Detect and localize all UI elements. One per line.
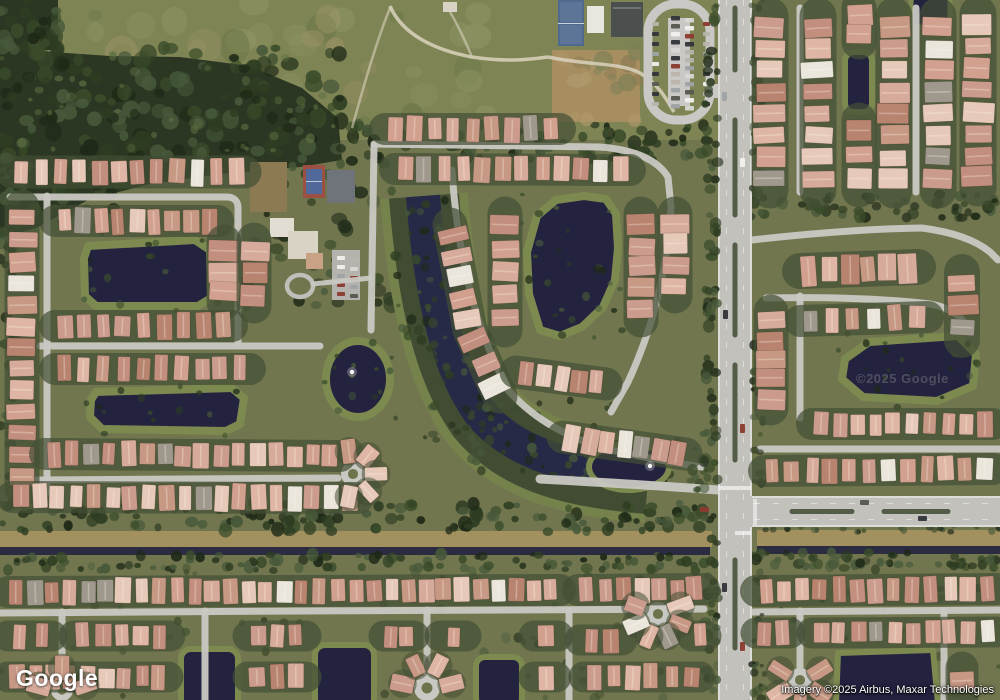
google-watermark: ©2025 Google [856, 371, 949, 386]
imagery-attribution: Imagery ©2025 Airbus, Maxar Technologies [781, 684, 994, 696]
satellite-map[interactable]: Google ©2025 Google Imagery ©2025 Airbus… [0, 0, 1000, 700]
satellite-imagery [0, 0, 1000, 700]
google-logo[interactable]: Google [16, 665, 98, 692]
